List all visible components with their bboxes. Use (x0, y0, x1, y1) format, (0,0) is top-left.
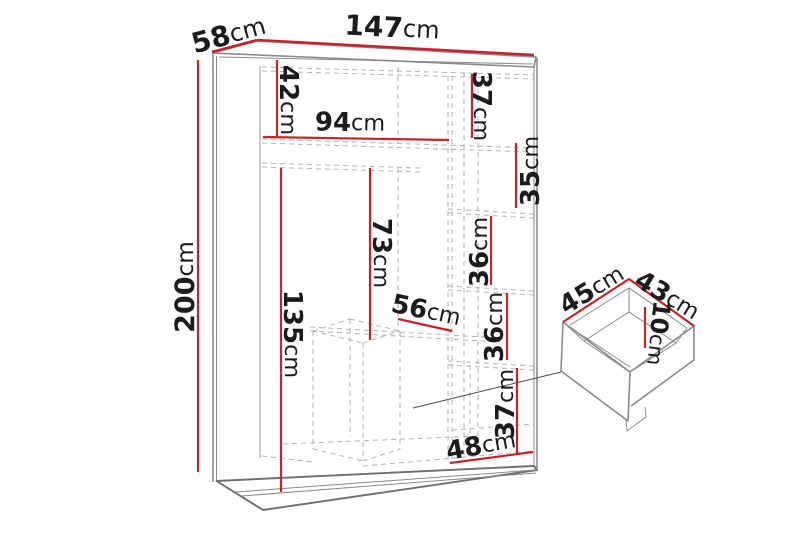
dimension-labels: 200cm 58cm 147cm 42cm 94cm 37cm 35cm 36c… (170, 9, 706, 467)
label-height-200: 200cm (170, 241, 201, 333)
internal-drawer-unit-box (313, 319, 400, 461)
drawer-leader-line (413, 372, 561, 408)
label-right-shelf-35: 35cm (516, 136, 546, 206)
middle-shelf-lines (310, 327, 500, 342)
dimension-diagram: 200cm 58cm 147cm 42cm 94cm 37cm 35cm 36c… (0, 0, 800, 533)
wardrobe-technical-drawing: 200cm 58cm 147cm 42cm 94cm 37cm 35cm 36c… (0, 0, 800, 533)
wardrobe-base (217, 466, 538, 510)
label-shelf-width-94: 94cm (315, 107, 386, 138)
label-right-top-37: 37cm (467, 71, 497, 141)
label-width-147: 147cm (344, 9, 441, 47)
label-middle-73: 73cm (367, 218, 397, 288)
vertical-divider-lines (448, 76, 452, 460)
hanging-rail-lines (262, 163, 420, 172)
label-top-shelf-42: 42cm (274, 65, 304, 135)
label-hanging-135: 135cm (278, 290, 308, 378)
label-bottom-width-48: 48cm (444, 425, 518, 467)
label-right-shelf-36b: 36cm (480, 292, 510, 362)
dimension-lines (198, 40, 694, 492)
label-right-shelf-36a: 36cm (465, 217, 495, 287)
